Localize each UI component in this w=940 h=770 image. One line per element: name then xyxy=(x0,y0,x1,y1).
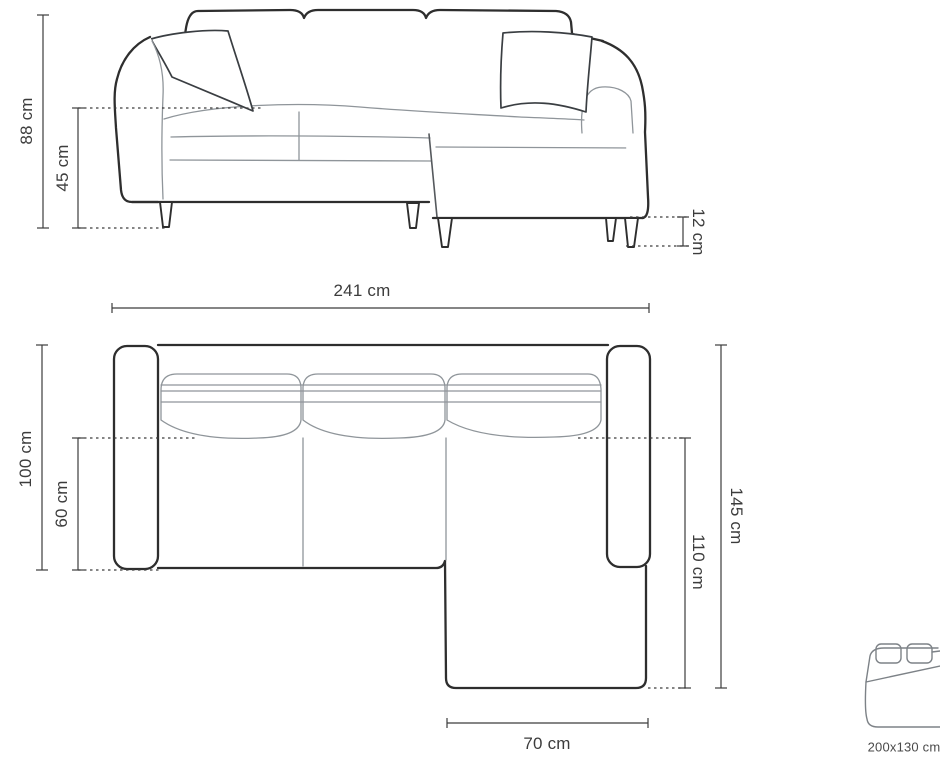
bed-outline xyxy=(866,648,940,682)
chaise-leg-front xyxy=(625,218,638,247)
front-seat-height-label: 45 cm xyxy=(53,144,73,191)
bed-pillow-right xyxy=(907,644,932,663)
seat-cushion-top-seam xyxy=(164,105,584,120)
top-total-length-label: 145 cm xyxy=(726,488,746,545)
top-total-depth-label: 100 cm xyxy=(16,431,36,488)
left-pillow xyxy=(151,30,253,111)
top-body-bottom-edge xyxy=(158,561,445,568)
chaise-leg-rear xyxy=(606,218,616,241)
front-total-height-label: 88 cm xyxy=(17,97,37,144)
top-chaise-width-label: 70 cm xyxy=(523,734,570,754)
top-chaise-length-label: 110 cm xyxy=(688,534,708,590)
front-leg-height-label: 12 cm xyxy=(688,208,708,255)
front-view-drawing xyxy=(115,10,649,247)
right-armrest-fill xyxy=(603,41,648,218)
sleeping-area-size-label: 200x130 cm xyxy=(868,740,940,755)
top-seat-depth-label: 60 cm xyxy=(52,480,72,527)
diagram-lineart xyxy=(0,0,940,770)
top-back-cushion-1 xyxy=(161,374,301,438)
top-left-armrest xyxy=(114,346,158,569)
left-armrest-fill xyxy=(115,37,163,202)
front-total-width-label: 241 cm xyxy=(334,281,391,301)
bed-pillow-left xyxy=(876,644,901,663)
front-leg-middle xyxy=(407,203,419,228)
sofa-dimension-diagram: 88 cm 45 cm 12 cm 241 cm 100 cm 60 cm 14… xyxy=(0,0,940,770)
bed-body xyxy=(865,682,940,727)
top-back-cushion-2 xyxy=(303,374,445,438)
top-right-armrest xyxy=(607,346,650,567)
top-view-drawing xyxy=(114,345,650,688)
chaise-front-top-seam xyxy=(436,147,643,148)
seat-front-bottom-seam xyxy=(170,160,431,161)
front-leg-left xyxy=(160,202,172,227)
chaise-leg-left xyxy=(438,218,452,247)
bed-headboard-line xyxy=(932,651,940,652)
right-pillow xyxy=(501,32,592,112)
seat-front-top-seam xyxy=(171,136,430,138)
sleeping-area-icon xyxy=(865,644,940,727)
top-back-cushion-3 xyxy=(447,374,601,437)
top-chaise-outline xyxy=(445,561,646,688)
